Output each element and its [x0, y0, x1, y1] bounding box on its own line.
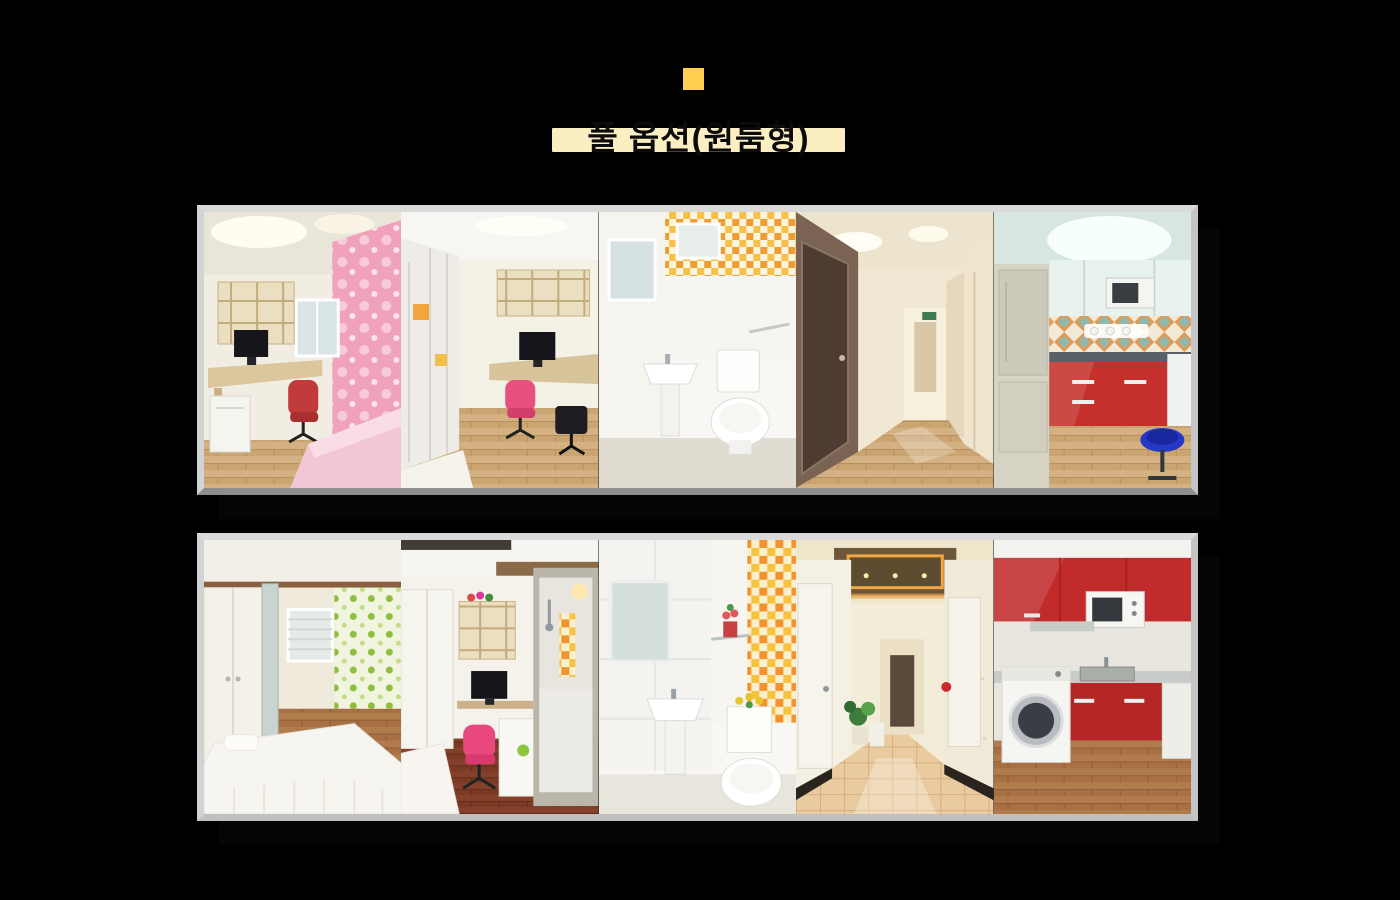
- photo-strip-row-1: [197, 205, 1198, 495]
- photo-bathroom-orange-tile: [599, 540, 796, 814]
- hallway-glossy-tile-image: [796, 540, 993, 814]
- bathroom-orange-tile-image: [599, 540, 796, 814]
- photo-bathroom-yellow-tile: [599, 212, 796, 488]
- photo-strip-row-2-inner: [204, 540, 1191, 814]
- photo-strip-row-2: [197, 533, 1198, 821]
- hallway-wood-floor-image: [796, 212, 993, 488]
- photo-kitchen-red-cabinets: [994, 212, 1191, 488]
- photo-strip-row-1-inner: [204, 212, 1191, 488]
- photo-room-wardrobe-desk: [401, 212, 598, 488]
- room-white-bed-image: [204, 540, 401, 814]
- title-highlight-bar: 풀 옵션(원룸형): [552, 128, 845, 152]
- photo-room-desk-pink-bed: [204, 212, 401, 488]
- page-title: 풀 옵션(원룸형): [552, 121, 845, 154]
- room-desk-pink-bed-image: [204, 212, 401, 488]
- photo-room-white-bed: [204, 540, 401, 814]
- page: { "page": { "background_color": "#000000…: [0, 0, 1400, 900]
- photo-kitchen-red-washer: [994, 540, 1191, 814]
- photo-hallway-wood-floor: [796, 212, 993, 488]
- accent-square: [683, 68, 704, 90]
- kitchen-red-cabinets-image: [994, 212, 1191, 488]
- photo-room-desk-shower: [401, 540, 598, 814]
- room-wardrobe-desk-image: [401, 212, 598, 488]
- bathroom-yellow-tile-image: [599, 212, 796, 488]
- room-desk-shower-image: [401, 540, 598, 814]
- photo-hallway-glossy-tile: [796, 540, 993, 814]
- kitchen-red-washer-image: [994, 540, 1191, 814]
